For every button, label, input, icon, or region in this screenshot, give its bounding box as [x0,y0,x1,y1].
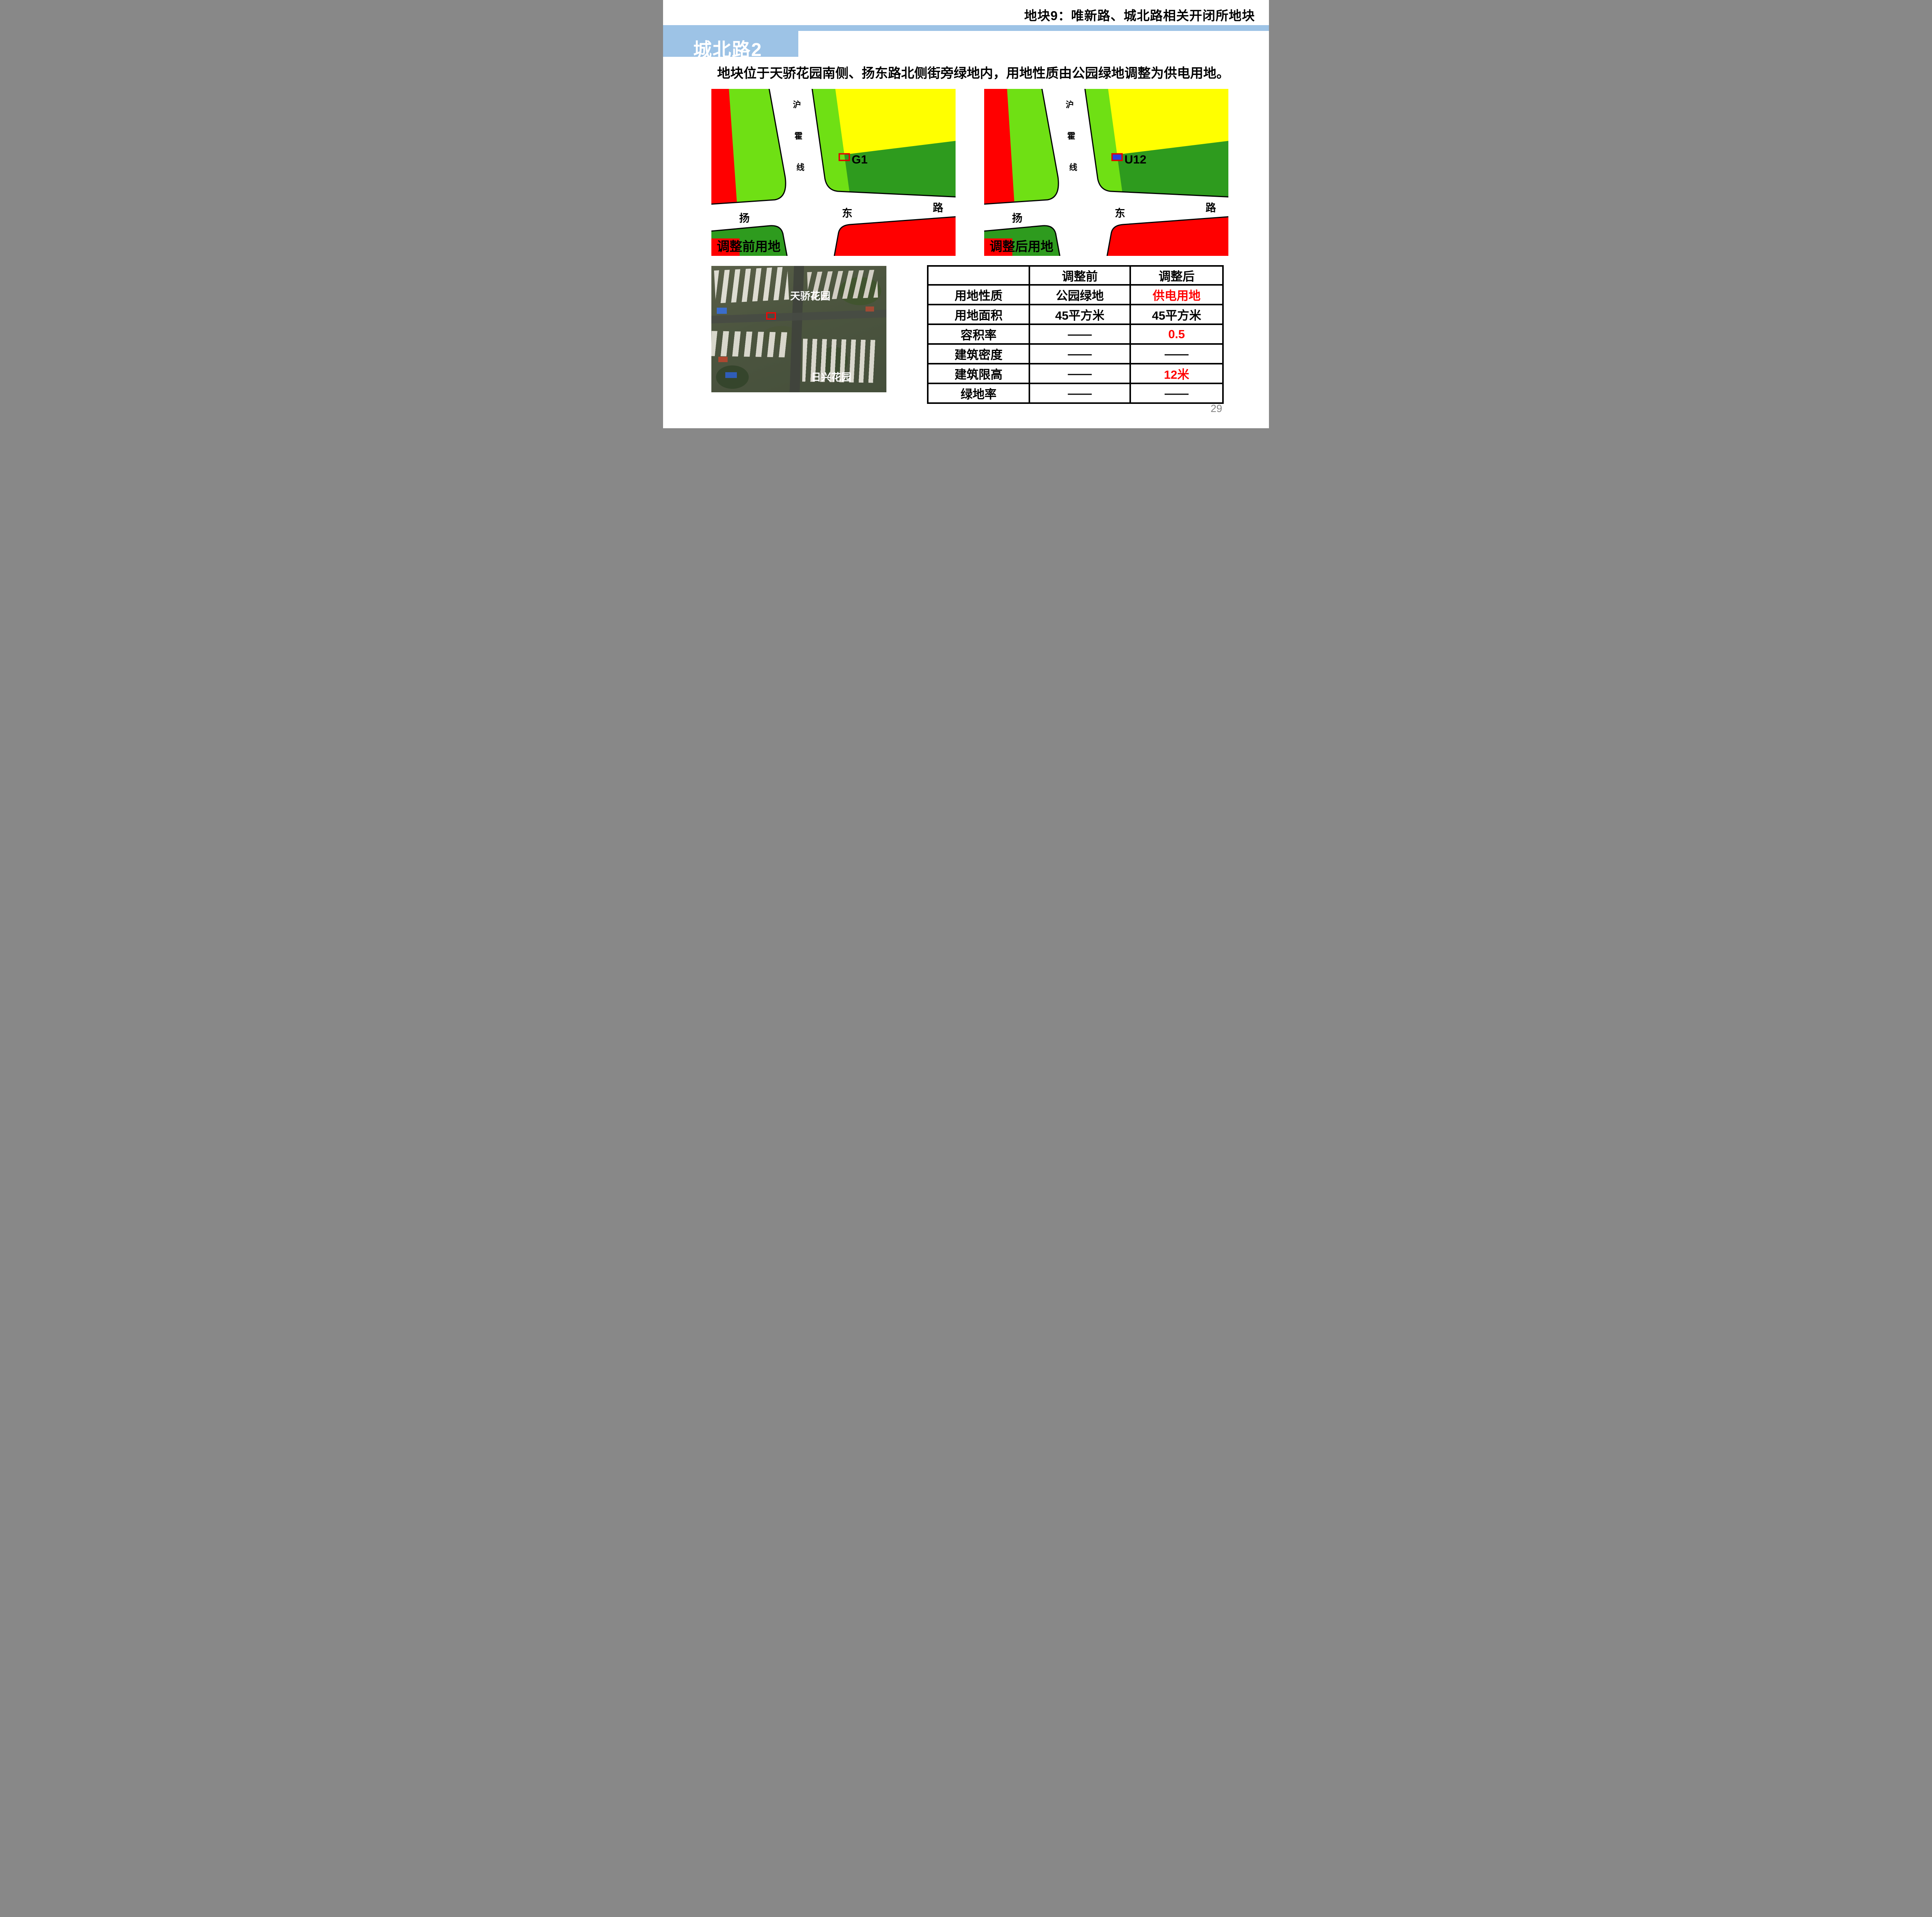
road-label-yang: 扬 [1012,213,1022,224]
map-before: G1 沪 霍 线 扬 东 路 调整前用地 [711,89,956,256]
road-label-lu: 路 [933,202,944,214]
cell-before: 45平方米 [1029,305,1130,324]
road-label-lu: 路 [1206,202,1216,214]
cell-after: 供电用地 [1130,285,1223,305]
table-row: 绿地率 —— —— [928,383,1223,403]
slide: 地块9：唯新路、城北路相关开闭所地块 城北路2 地块位于天骄花园南侧、扬东路北侧… [663,0,1269,428]
cell-before: —— [1029,324,1130,344]
parcel-bottom-right [833,216,956,256]
map-after: U12 沪 霍 线 扬 东 路 调整后用地 [984,89,1228,256]
adjustment-table: 调整前 调整后 用地性质 公园绿地 供电用地 用地面积 45平方米 45平方米 … [927,265,1224,404]
row-label: 绿地率 [928,383,1029,403]
row-label: 建筑密度 [928,344,1029,364]
road-label-xian: 线 [1069,163,1077,172]
aerial-roof [725,372,737,378]
table-row: 用地面积 45平方米 45平方米 [928,305,1223,324]
table-row: 建筑限高 —— 12米 [928,364,1223,383]
road-label-huo: 霍 [794,132,803,141]
row-label: 建筑限高 [928,364,1029,383]
plot-marker-label: U12 [1124,153,1146,166]
aerial-photo: 天骄花园 日兴花园 [711,266,886,392]
table-row: 用地性质 公园绿地 供电用地 [928,285,1223,305]
aerial-site-marker [766,312,776,320]
row-label: 用地性质 [928,285,1029,305]
map-after-svg: U12 沪 霍 线 扬 东 路 调整后用地 [984,89,1228,256]
table-header-row: 调整前 调整后 [928,266,1223,285]
table-header-empty [928,266,1029,285]
aerial-roof [717,308,727,314]
map-after-caption: 调整后用地 [990,239,1053,254]
cell-after: —— [1130,344,1223,364]
table-row: 容积率 —— 0.5 [928,324,1223,344]
road-label-dong: 东 [1115,207,1125,219]
parcel-top-left [984,89,1058,204]
slide-title: 地块9：唯新路、城北路相关开闭所地块 [1024,5,1255,24]
map-before-svg: G1 沪 霍 线 扬 东 路 调整前用地 [711,89,956,256]
road-label-huo: 霍 [1067,132,1075,141]
map-before-caption: 调整前用地 [717,239,781,254]
table-row: 建筑密度 —— —— [928,344,1223,364]
cell-before: 公园绿地 [1029,285,1130,305]
table-header-after: 调整后 [1130,266,1223,285]
aerial-label-rixing: 日兴花园 [811,369,851,384]
parcel-main-block [1084,89,1228,205]
cell-after: 0.5 [1130,324,1223,344]
cell-before: —— [1029,383,1130,403]
parcel-main-block [811,89,956,205]
table-header-before: 调整前 [1029,266,1130,285]
road-label-dong: 东 [842,207,852,219]
aerial-buildings [714,267,789,303]
cell-after: 45平方米 [1130,305,1223,324]
aerial-roof [866,306,874,312]
aerial-roof [718,357,728,362]
road-label-hu: 沪 [1066,100,1074,109]
plot-marker-u12 [1112,154,1122,160]
section-banner: 城北路2 [663,25,798,57]
row-label: 用地面积 [928,305,1029,324]
description-text: 地块位于天骄花园南侧、扬东路北侧街旁绿地内，用地性质由公园绿地调整为供电用地。 [717,63,1258,82]
aerial-buildings [711,331,789,358]
cell-before: —— [1029,344,1130,364]
parcel-top-left [711,89,786,204]
cell-after: —— [1130,383,1223,403]
plot-marker-label: G1 [852,153,867,166]
road-label-xian: 线 [796,163,804,172]
road-label-yang: 扬 [739,213,750,224]
page-number: 29 [1211,403,1222,415]
aerial-label-tianjiao: 天骄花园 [790,288,830,303]
cell-after: 12米 [1130,364,1223,383]
parcel-bottom-right [1106,216,1228,256]
cell-before: —— [1029,364,1130,383]
road-label-hu: 沪 [793,100,801,109]
row-label: 容积率 [928,324,1029,344]
section-banner-label: 城北路2 [693,34,762,61]
